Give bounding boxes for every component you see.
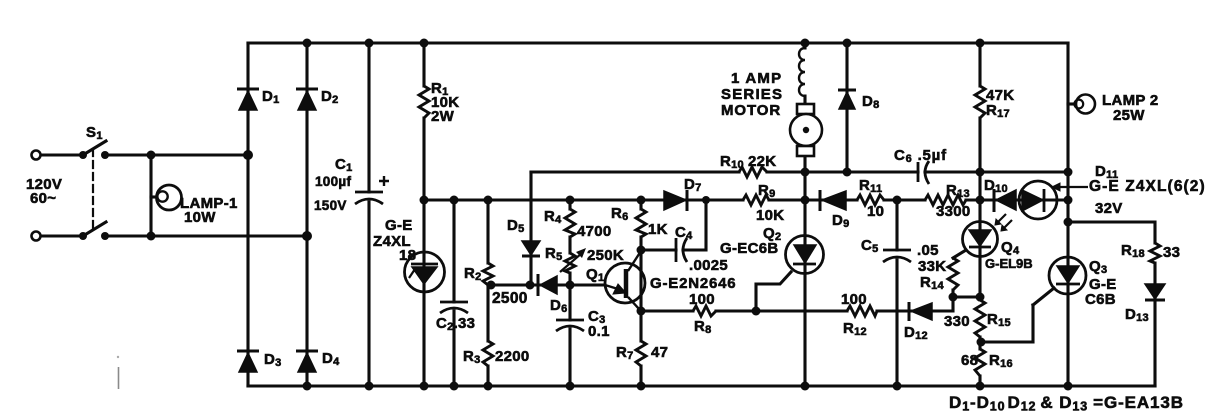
svg-text:33K: 33K	[918, 258, 946, 275]
svg-text:D7: D7	[684, 176, 702, 194]
svg-text:D6: D6	[550, 297, 568, 315]
svg-text:R7: R7	[616, 344, 634, 362]
svg-text:18: 18	[399, 247, 416, 264]
svg-text:D4: D4	[322, 350, 340, 368]
svg-text:1 AMP: 1 AMP	[731, 70, 782, 87]
svg-text:G-EL9B: G-EL9B	[985, 256, 1033, 271]
svg-text:R16: R16	[989, 352, 1013, 370]
svg-text:250K: 250K	[587, 247, 624, 264]
svg-text:C5: C5	[861, 237, 879, 255]
svg-text:Q1: Q1	[586, 266, 604, 284]
svg-text:4700: 4700	[577, 223, 612, 240]
svg-text:68: 68	[961, 352, 978, 369]
svg-text:R3: R3	[463, 348, 481, 366]
svg-text:R17: R17	[986, 102, 1010, 120]
svg-text:C6B: C6B	[1085, 291, 1116, 308]
svg-text:D5: D5	[507, 217, 525, 235]
svg-text:R11: R11	[859, 177, 882, 195]
svg-text:G-E Z4XL(6(2): G-E Z4XL(6(2)	[1089, 178, 1206, 195]
svg-text:R13: R13	[946, 182, 970, 200]
svg-text:D2: D2	[321, 88, 339, 106]
svg-text:D12: D12	[904, 324, 928, 342]
svg-text:R1022K: R1022K	[720, 153, 776, 171]
svg-text:G-E: G-E	[385, 217, 413, 234]
svg-text:33: 33	[1163, 244, 1180, 261]
svg-text:R5: R5	[545, 245, 563, 263]
svg-text:2W: 2W	[431, 108, 455, 125]
svg-text:D1-D10D12& D13=G-EA13B: D1-D10D12& D13=G-EA13B	[949, 393, 1184, 413]
svg-text:R2: R2	[464, 265, 482, 283]
svg-text:R12: R12	[843, 320, 867, 338]
svg-text:10K: 10K	[756, 207, 784, 224]
svg-text:G-EC6B: G-EC6B	[720, 240, 778, 257]
svg-text:D10: D10	[984, 177, 1008, 195]
svg-text:47: 47	[651, 344, 668, 361]
svg-text:Q3: Q3	[1089, 258, 1107, 276]
svg-text:Q4: Q4	[1001, 239, 1020, 257]
svg-text:C1: C1	[335, 156, 353, 174]
svg-text:.05: .05	[917, 242, 939, 259]
svg-text:D13: D13	[1125, 306, 1149, 324]
svg-text:2200: 2200	[495, 348, 530, 365]
svg-text:R8: R8	[694, 318, 712, 336]
svg-text:3300: 3300	[936, 203, 971, 220]
svg-text:.0025: .0025	[689, 257, 728, 274]
svg-text:100: 100	[841, 291, 867, 308]
svg-text:C6.5µf: C6.5µf	[894, 147, 947, 165]
svg-text:330: 330	[944, 313, 970, 330]
svg-text:25W: 25W	[1113, 107, 1145, 124]
svg-text:S1: S1	[86, 124, 103, 142]
svg-text:R18: R18	[1121, 242, 1145, 260]
svg-text:D8: D8	[862, 93, 880, 111]
svg-text:0.1: 0.1	[588, 323, 610, 340]
svg-text:G-E2N2646: G-E2N2646	[650, 275, 736, 292]
svg-text:R15: R15	[987, 311, 1011, 329]
svg-text:100µf: 100µf	[315, 174, 352, 189]
svg-text:10W: 10W	[184, 209, 216, 226]
svg-text:32V: 32V	[1095, 200, 1123, 217]
svg-text:SERIES: SERIES	[721, 86, 783, 103]
svg-text:D3: D3	[264, 351, 282, 369]
svg-text:60~: 60~	[30, 190, 56, 207]
svg-text:C4: C4	[675, 224, 693, 242]
svg-text:D1: D1	[262, 88, 280, 106]
svg-text:10: 10	[867, 203, 884, 220]
svg-text:R6: R6	[611, 205, 629, 223]
svg-text:150V: 150V	[314, 198, 347, 213]
svg-text:R14: R14	[920, 274, 945, 292]
svg-text:C2.33: C2.33	[436, 315, 475, 333]
svg-text:2500: 2500	[492, 290, 528, 307]
svg-text:R4: R4	[544, 208, 562, 226]
svg-text:MOTOR: MOTOR	[721, 102, 781, 119]
svg-text:100: 100	[689, 291, 715, 308]
svg-text:1K: 1K	[648, 221, 668, 238]
svg-text:D9: D9	[832, 212, 850, 230]
svg-text:R9: R9	[758, 182, 776, 200]
